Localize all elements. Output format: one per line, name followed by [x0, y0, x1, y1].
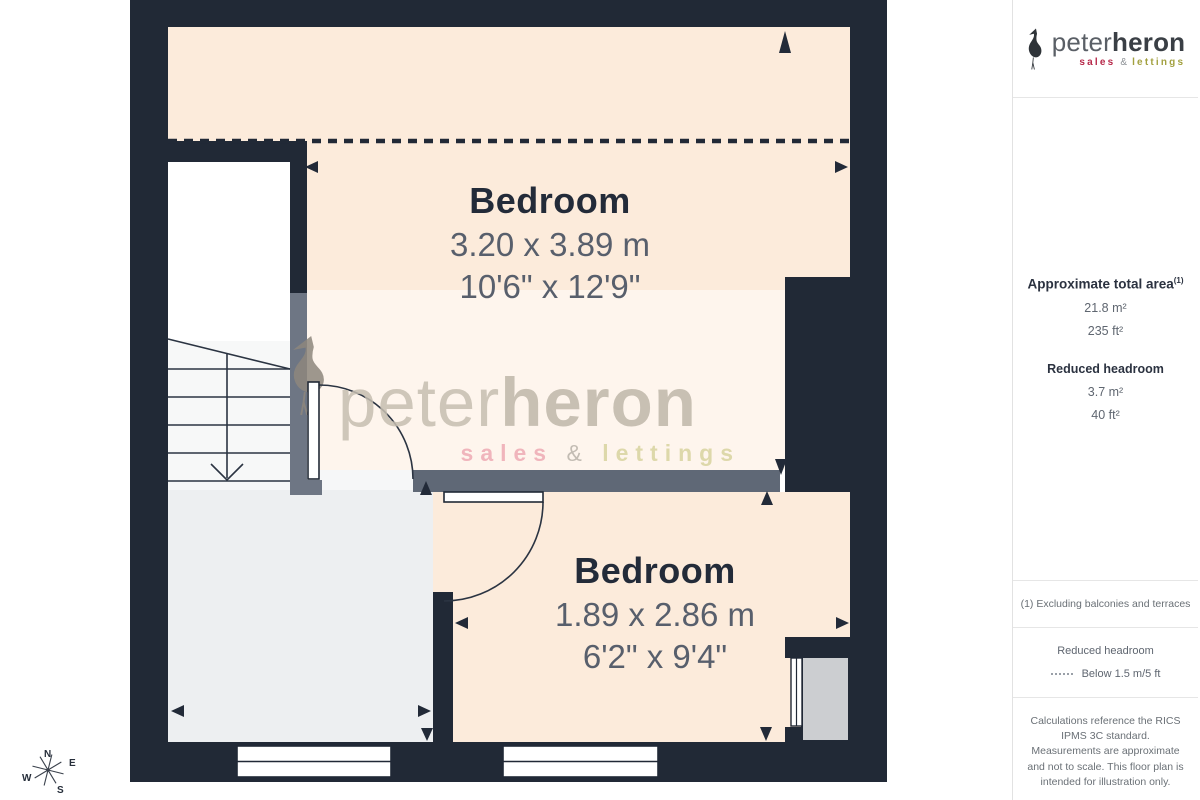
total-area-m2: 21.8 m²: [1013, 301, 1198, 315]
window-left: [237, 746, 391, 777]
info-sidebar: peterheron sales & lettings Approximate …: [1012, 0, 1198, 800]
logo-wordmark: peterheron: [1052, 29, 1186, 55]
footnote-text: (1) Excluding balconies and terraces: [1021, 598, 1191, 610]
compass-rose: N E W S: [22, 749, 76, 796]
logo-lettings: lettings: [1132, 57, 1185, 68]
door-leaf: [444, 492, 543, 502]
watermark-amp: &: [566, 440, 588, 466]
arrow-right-icon: [835, 161, 848, 173]
logo-tagline: sales & lettings: [1052, 57, 1186, 68]
reduced-headroom-title: Reduced headroom: [1013, 362, 1198, 376]
legend-row: Below 1.5 m/5 ft: [1013, 668, 1198, 680]
watermark-brand-first: peter: [338, 364, 500, 441]
logo-card: peterheron sales & lettings: [1013, 0, 1198, 97]
arrow-left-icon: [305, 161, 318, 173]
legend-label: Below 1.5 m/5 ft: [1082, 668, 1161, 680]
compass-e: E: [69, 758, 76, 769]
disclaimer-card: Calculations reference the RICS IPMS 3C …: [1013, 697, 1198, 800]
room-name: Bedroom: [330, 178, 770, 224]
compass-n: N: [44, 749, 51, 760]
arrow-down-icon: [421, 728, 433, 741]
arrow-down-icon: [775, 459, 787, 475]
reduced-headroom-m2: 3.7 m²: [1013, 385, 1198, 399]
room-dimensions-imperial: 6'2" x 9'4": [435, 636, 875, 678]
bedroom1-label: Bedroom 3.20 x 3.89 m 10'6" x 12'9": [330, 178, 770, 308]
watermark-sales: sales: [461, 440, 554, 466]
legend-card: Reduced headroom Below 1.5 m/5 ft: [1013, 627, 1198, 697]
room-dimensions-imperial: 10'6" x 12'9": [330, 266, 770, 308]
total-area-ft2: 235 ft²: [1013, 324, 1198, 338]
disclaimer-text: Calculations reference the RICS IPMS 3C …: [1026, 714, 1185, 790]
watermark-brand: peterheron sales & lettings: [338, 368, 740, 467]
compass-s: S: [57, 785, 64, 796]
arrow-down-icon: [760, 727, 772, 741]
room-dimensions-metric: 1.89 x 2.86 m: [435, 594, 875, 636]
arrow-up-icon: [420, 481, 432, 495]
arrow-right-icon: [418, 705, 431, 717]
area-summary-card: Approximate total area(1) 21.8 m² 235 ft…: [1013, 97, 1198, 580]
arrow-up-icon: [761, 491, 773, 505]
watermark-lettings: lettings: [602, 440, 740, 466]
total-area-title: Approximate total area(1): [1013, 276, 1198, 292]
staircase: [168, 339, 290, 481]
reduced-headroom-ft2: 40 ft²: [1013, 408, 1198, 422]
footnote-marker: (1): [1174, 276, 1184, 285]
dashed-line-sample: [1051, 673, 1073, 675]
watermark-brand-second: heron: [500, 364, 697, 441]
arrow-up-icon: [779, 31, 791, 53]
door-leaf: [308, 382, 319, 479]
footnote-card: (1) Excluding balconies and terraces: [1013, 580, 1198, 627]
arrow-left-icon: [171, 705, 184, 717]
heron-logo-icon: [1026, 26, 1047, 72]
logo-brand-second: heron: [1112, 27, 1185, 57]
logo-amp: &: [1120, 57, 1127, 68]
floor-plan-page: N E W S peterheron sales & lettings Bedr…: [0, 0, 1200, 800]
compass-w: W: [22, 773, 32, 784]
legend-title: Reduced headroom: [1013, 645, 1198, 657]
bedroom2-label: Bedroom 1.89 x 2.86 m 6'2" x 9'4": [435, 548, 875, 678]
logo-sales: sales: [1079, 57, 1115, 68]
room-name: Bedroom: [435, 548, 875, 594]
window-right: [503, 746, 658, 777]
logo-brand-first: peter: [1052, 27, 1112, 57]
room-dimensions-metric: 3.20 x 3.89 m: [330, 224, 770, 266]
